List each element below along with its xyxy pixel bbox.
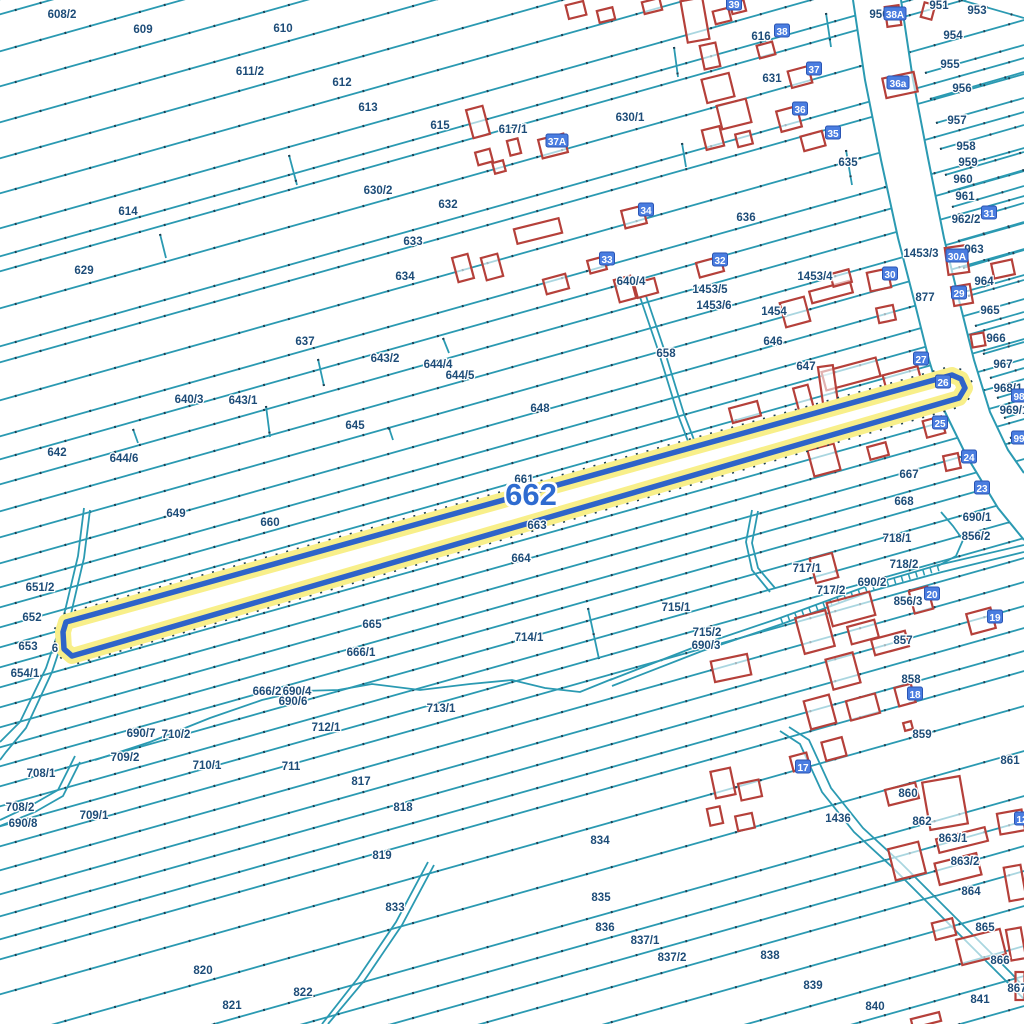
address-badge-number: 34 [640,206,652,217]
parcel-label-614: 614 [118,206,138,218]
parcel-label-960: 960 [953,174,972,186]
parcel-label-661: 661 [514,474,534,486]
address-badge-number: 38 [776,27,788,38]
building-footprint [795,610,835,654]
parcel-label-643/1: 643/1 [229,395,258,407]
parcel-label-954: 954 [943,30,963,42]
parcel-boundary-line [945,152,1024,175]
parcel-label-612: 612 [332,77,351,89]
building-footprint [702,73,735,103]
parcel-label-959: 959 [958,157,977,169]
building-footprint [466,106,490,138]
parcel-label-953: 953 [967,5,986,17]
parcel-label-859: 859 [912,729,931,741]
parcel-label-819: 819 [372,850,391,862]
parcel-label-712/1: 712/1 [312,722,341,734]
parcel-label-690/2: 690/2 [858,577,887,589]
parcel-label-856/3: 856/3 [894,596,923,608]
parcel-label-690/3: 690/3 [692,640,721,652]
boundary-point-ticks [0,625,1024,919]
building-footprint [475,149,493,165]
parcel-tie-line [389,428,393,440]
parcel-label-962/2: 962/2 [952,214,981,226]
parcel-label-860: 860 [898,788,917,800]
parcel-label-690/6: 690/6 [279,696,308,708]
parcel-label-865: 865 [975,922,995,934]
building-footprint [710,768,735,799]
address-badge-number: 23 [976,484,988,495]
address-badge-number: 27 [915,355,927,366]
parcel-label-715/2: 715/2 [693,627,722,639]
parcel-label-863/2: 863/2 [951,856,980,868]
boundary-point-ticks [0,495,1024,789]
building-footprint [642,0,662,14]
parcel-label-710/2: 710/2 [162,729,191,741]
parcel-label-837/1: 837/1 [631,935,660,947]
parcel-label-821: 821 [222,1000,242,1012]
parcel-label-617/1: 617/1 [499,124,528,136]
parcel-label-709/2: 709/2 [111,752,140,764]
parcel-label-717/2: 717/2 [817,585,846,597]
address-badge-number: 30 [884,270,896,281]
parcel-label-616: 616 [751,31,770,43]
parcel-label-965: 965 [980,305,1000,317]
parcel-label-646: 646 [763,336,782,348]
parcel-label-649: 649 [166,508,185,520]
parcel-label-652: 652 [22,612,41,624]
parcel-label-635: 635 [838,157,858,169]
address-badge-number: 33 [601,255,613,266]
parcel-label-609: 609 [133,24,152,36]
parcel-label-654/1: 654/1 [11,668,40,680]
building-footprint [876,305,896,323]
parcel-label-713/1: 713/1 [427,703,456,715]
address-badge-number: 39 [728,0,740,11]
parcel-label-1453/3: 1453/3 [903,248,938,260]
parcel-label-690/8: 690/8 [9,818,38,830]
parcel-label-643/2: 643/2 [371,353,400,365]
building-footprint [970,332,985,347]
parcel-label-645: 645 [345,420,365,432]
address-badge-number: 98 [1013,392,1024,403]
parcel-label-651/2: 651/2 [26,582,55,594]
address-badge-number: 25 [934,419,946,430]
parcel-boundary-line [0,973,1024,1024]
parcel-label-964: 964 [974,276,994,288]
parcel-label-634: 634 [395,271,415,283]
address-badge-number: 99 [1013,434,1024,445]
parcel-label-839: 839 [803,980,822,992]
building-footprint [911,1012,941,1024]
building-footprint [738,780,762,801]
boundary-point-ticks [0,973,1024,1024]
address-badge-number: 20 [926,590,938,601]
parcel-label-6: 6 [52,643,58,655]
parcel-label-955: 955 [940,59,960,71]
parcel-label-664: 664 [511,553,531,565]
parcel-label-633: 633 [403,236,422,248]
map-canvas[interactable]: 608/2609610611/2612613615617/1616630/163… [0,0,1024,1024]
building-footprint [804,695,837,730]
parcel-label-820: 820 [193,965,212,977]
address-badge-number: 29 [953,289,965,300]
parcel-label-711: 711 [282,761,301,773]
parcel-label-632: 632 [438,199,457,211]
address-badge-number: 30A [948,252,966,263]
parcel-label-642: 642 [47,447,66,459]
parcel-label-644/5: 644/5 [446,370,475,382]
parcel-label-841: 841 [970,994,990,1006]
parcel-label-838: 838 [760,950,780,962]
parcel-label-835: 835 [591,892,611,904]
parcel-label-817: 817 [351,776,370,788]
parcel-label-636: 636 [736,212,755,224]
building-footprint [566,1,587,19]
parcel-label-858: 858 [901,674,921,686]
parcel-tie-line [443,338,449,353]
cadastral-map-svg: 608/2609610611/2612613615617/1616630/163… [0,0,1024,1024]
parcel-label-690/7: 690/7 [127,728,156,740]
parcel-tie-line [674,47,678,77]
building-footprint [735,131,753,147]
parcel-label-863/1: 863/1 [939,833,968,845]
parcel-label-666/1: 666/1 [347,647,376,659]
building-footprint [846,693,880,720]
parcel-label-958: 958 [956,141,976,153]
parcel-label-1453/4: 1453/4 [797,271,833,283]
building-footprint [717,99,752,130]
building-footprint [711,654,752,682]
parcel-label-631: 631 [762,73,782,85]
address-badge-number: 37 [808,65,820,76]
parcel-label-956: 956 [952,83,971,95]
parcel-label-867: 867 [1007,983,1024,995]
track-edge-line [322,862,428,1024]
parcel-boundary-line [0,748,1024,1024]
parcel-label-715/1: 715/1 [662,602,691,614]
parcel-label-866: 866 [990,955,1009,967]
building-footprint [452,254,474,282]
parcel-label-834: 834 [590,835,610,847]
parcel-label-666/2: 666/2 [253,686,282,698]
building-footprint [514,218,562,244]
parcel-tie-line [160,234,166,258]
parcel-label-718/2: 718/2 [890,559,919,571]
address-badge-number: 17 [797,763,809,774]
building-footprint [700,43,721,70]
address-badge-number: 36a [890,79,907,90]
address-badge-number: 12 [1016,815,1024,826]
parcel-label-718/1: 718/1 [883,533,912,545]
parcel-boundary-line [940,125,1024,149]
parcel-label-613: 613 [358,102,377,114]
building-footprint [492,160,505,173]
address-badge-number: 38A [886,10,904,21]
parcel-label-630/1: 630/1 [616,112,645,124]
building-footprint [735,813,755,831]
building-footprint [543,274,569,294]
address-badge-number: 18 [909,690,921,701]
parcel-label-856/2: 856/2 [962,531,991,543]
parcel-boundary-line [930,72,1024,99]
parcel-label-836: 836 [595,922,614,934]
parcel-label-967: 967 [993,359,1012,371]
parcel-label-629: 629 [74,265,93,277]
parcel-label-957: 957 [947,115,966,127]
building-footprint [821,737,846,761]
parcel-label-709/1: 709/1 [80,810,109,822]
parcel-label-653: 653 [18,641,37,653]
building-footprint [932,918,956,940]
address-badge-number: 35 [827,129,839,140]
parcel-label-710/1: 710/1 [193,760,222,772]
parcel-label-690/1: 690/1 [963,512,992,524]
parcel-label-877: 877 [915,292,934,304]
building-footprint [507,138,521,155]
parcel-label-640/4: 640/4 [617,276,646,288]
parcel-label-717/1: 717/1 [793,563,822,575]
parcel-label-857: 857 [893,635,912,647]
parcel-label-637: 637 [295,336,314,348]
parcel-label-660: 660 [260,517,279,529]
building-footprint [707,806,723,825]
building-footprint [1004,865,1024,901]
building-footprint [888,842,926,881]
building-footprint [597,7,615,23]
parcel-label-1453/6: 1453/6 [696,300,731,312]
building-footprint [825,652,860,689]
parcel-label-658: 658 [656,348,676,360]
address-badge-number: 26 [937,378,949,389]
parcel-label-644/6: 644/6 [110,453,139,465]
parcel-label-668: 668 [894,496,914,508]
address-badge-number: 37A [548,137,566,148]
parcel-label-708/1: 708/1 [27,768,56,780]
parcel-label-610: 610 [273,23,292,35]
building-footprint [702,126,724,150]
parcel-label-966: 966 [986,333,1005,345]
parcel-label-608/2: 608/2 [48,9,77,21]
parcel-label-611/2: 611/2 [236,66,264,78]
parcel-label-667: 667 [899,469,918,481]
parcel-label-1436: 1436 [825,813,851,825]
building-footprint [991,259,1015,278]
parcel-tie-line [133,429,138,443]
building-footprint [757,42,776,59]
parcel-label-861: 861 [1000,755,1020,767]
building-footprint [943,453,961,471]
boundary-point-ticks [0,748,1024,1024]
address-badge-number: 19 [989,613,1001,624]
parcel-label-1453/5: 1453/5 [692,284,728,296]
address-badge-number: 31 [983,209,995,220]
parcel-label-822: 822 [293,987,312,999]
building-footprint [729,401,761,423]
address-badge-number: 32 [714,256,726,267]
parcel-label-951: 951 [929,0,949,12]
parcel-label-862: 862 [912,816,931,828]
parcel-label-840: 840 [865,1001,884,1013]
parcel-label-818: 818 [393,802,413,814]
parcel-label-630/2: 630/2 [364,185,393,197]
address-badge-number: 36 [794,105,806,116]
parcel-label-663: 663 [527,520,546,532]
parcel-label-648: 648 [530,403,550,415]
parcel-label-837/2: 837/2 [658,952,687,964]
parcel-label-833: 833 [385,902,404,914]
parcel-label-708/2: 708/2 [6,802,35,814]
building-footprint [481,254,503,281]
parcel-label-969/1: 969/1 [1000,405,1024,417]
parcel-label-714/1: 714/1 [515,632,544,644]
parcel-label-961: 961 [955,191,975,203]
parcel-label-665: 665 [362,619,382,631]
building-footprint [800,131,825,151]
parcel-label-615: 615 [430,120,450,132]
parcel-label-1454: 1454 [761,306,787,318]
parcel-label-640/3: 640/3 [175,394,204,406]
parcel-label-864: 864 [961,886,981,898]
parcel-label-647: 647 [796,361,815,373]
parcel-tie-line [318,359,324,386]
address-badge-number: 24 [963,453,975,464]
